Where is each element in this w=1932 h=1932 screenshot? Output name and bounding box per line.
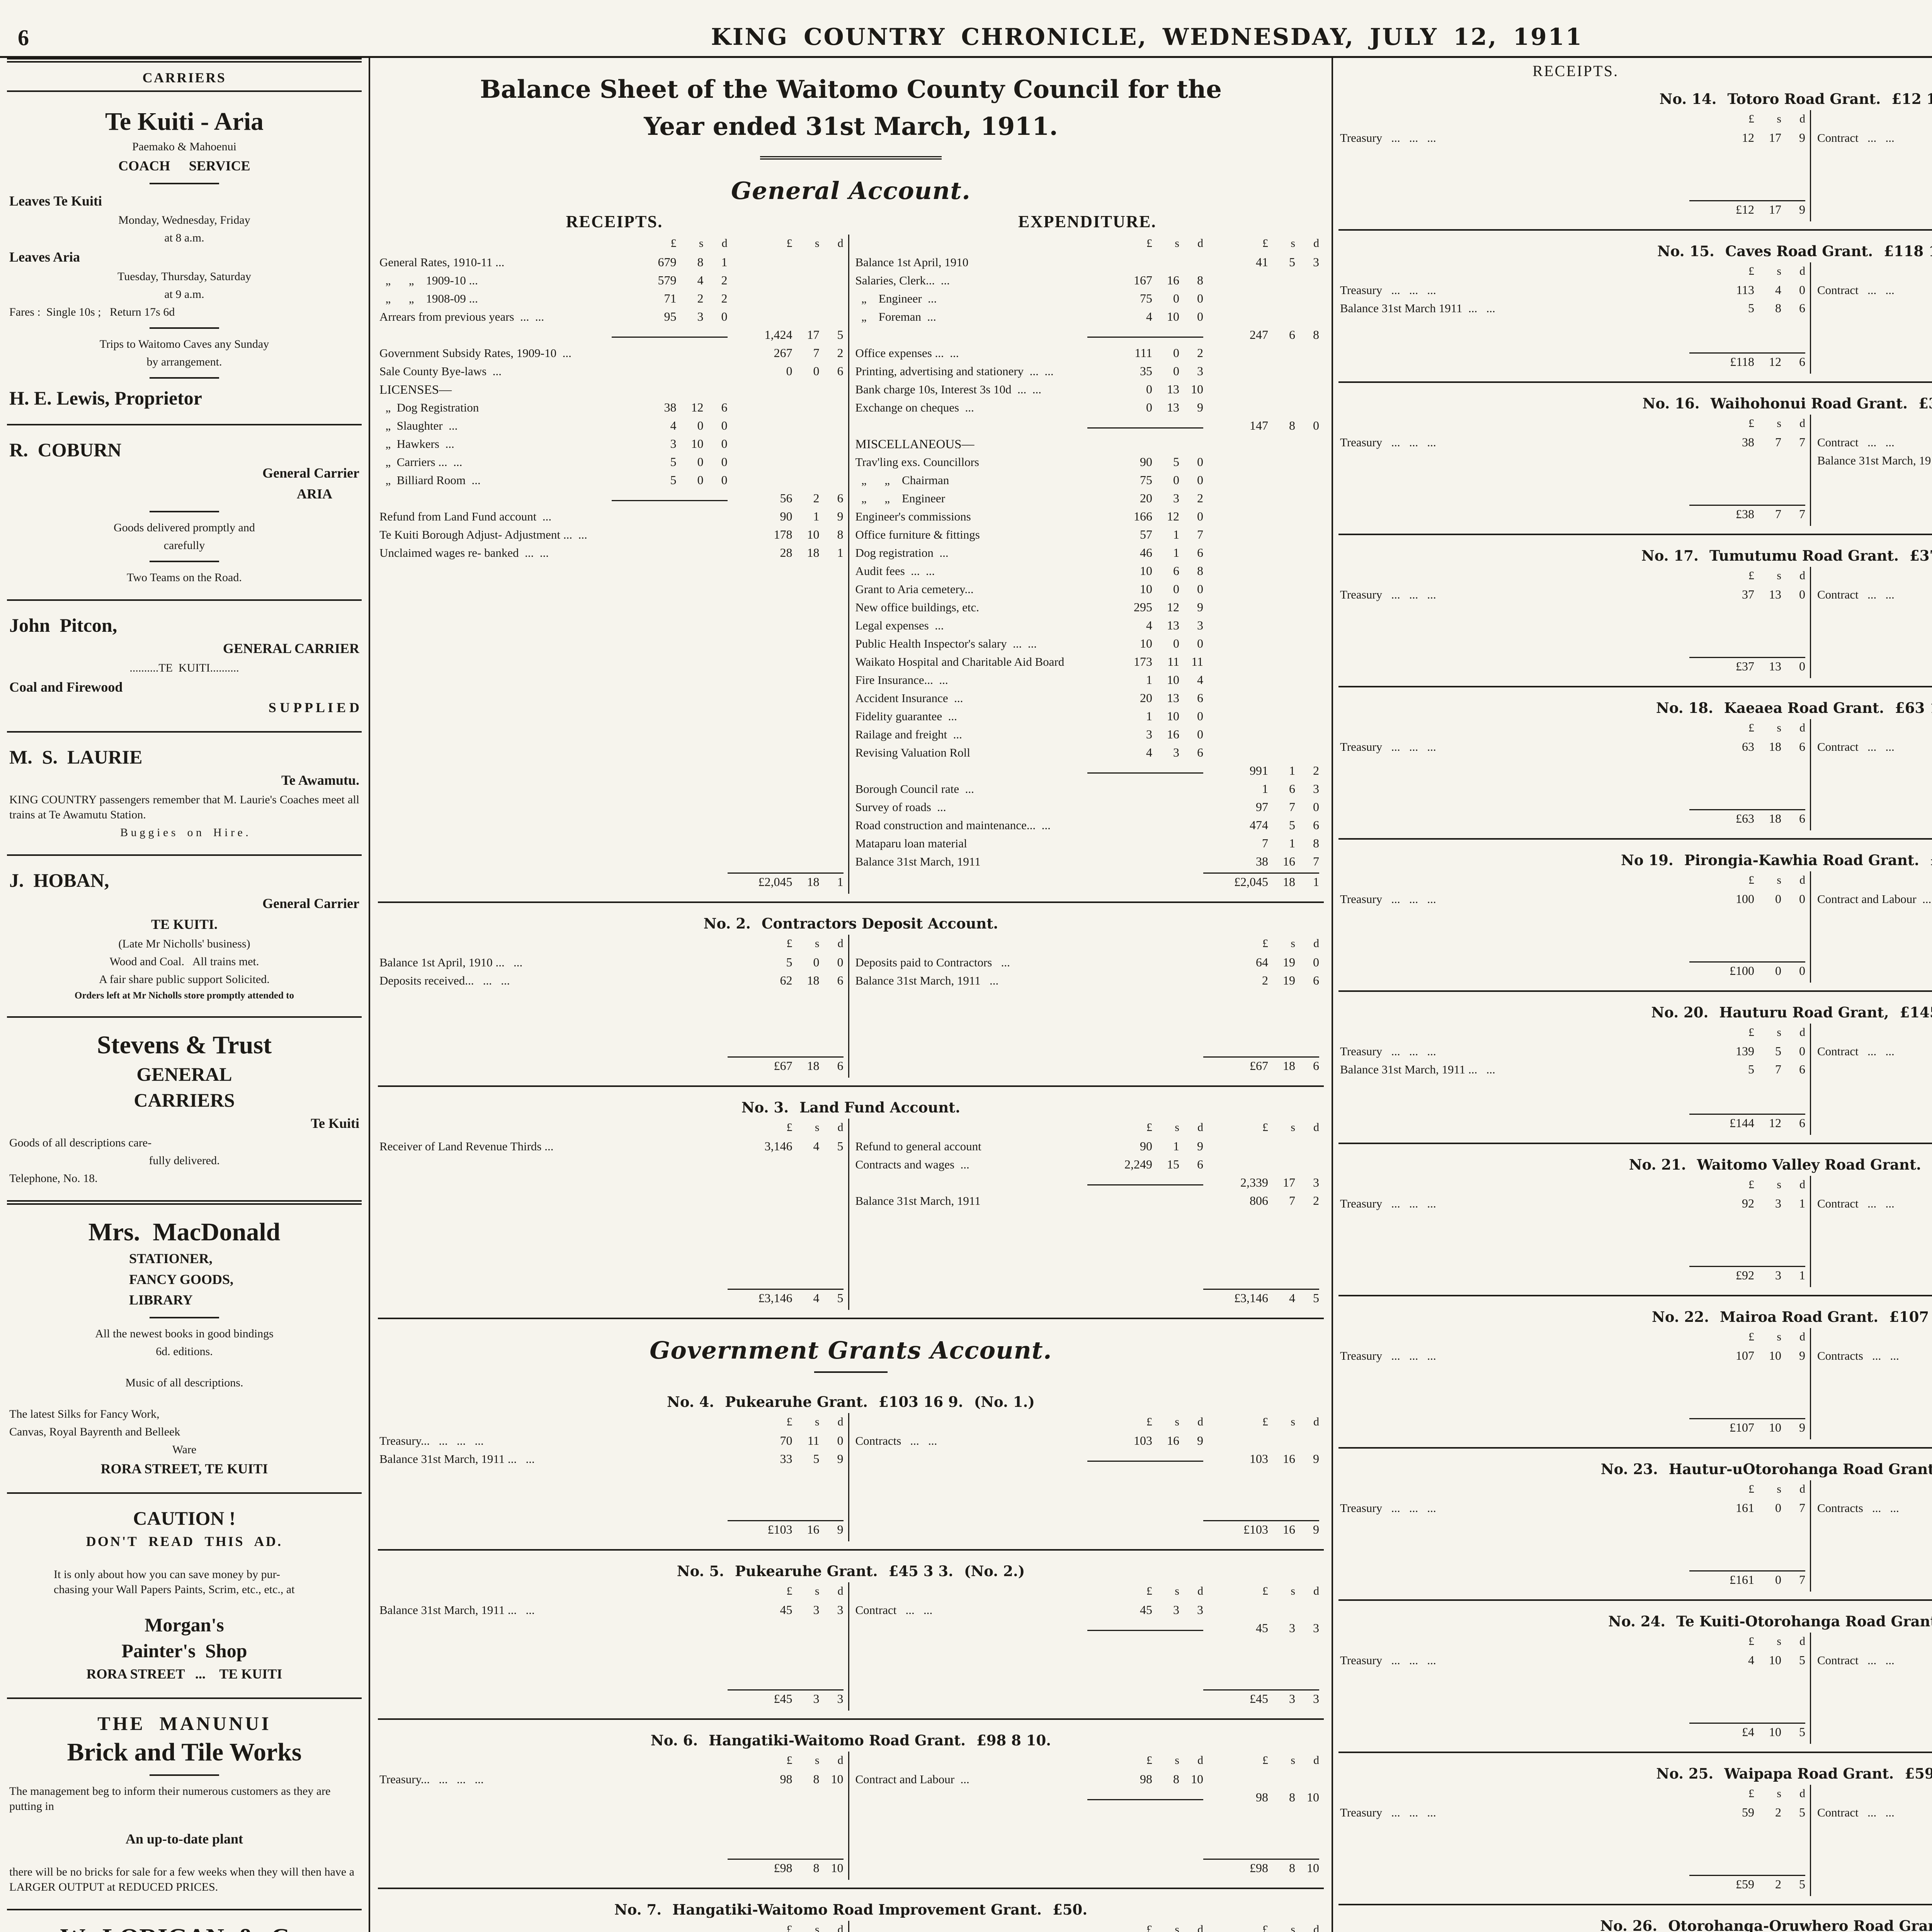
amount-part: s: [1754, 1026, 1781, 1039]
amount-part: 8: [1268, 1790, 1295, 1804]
row-label: Exchange on cheques ...: [855, 400, 1088, 415]
row-label: New office buildings, etc.: [855, 600, 1088, 615]
amount-part: 8: [1295, 836, 1319, 850]
ad-line: Canvas, Royal Bayrenth and Belleek: [9, 1424, 359, 1439]
amount-part: 10: [1754, 1349, 1781, 1363]
amount-part: 6: [820, 364, 844, 378]
ledger-row: Treasury ... ... ...3877: [1340, 435, 1805, 453]
ledger-row: £10000: [1817, 961, 1932, 980]
ad-stevens-trust: Stevens & TrustGENERALCARRIERSTe KuitiGo…: [7, 1018, 362, 1205]
account-title: No 19.Pirongia-Kawhia Road Grant.£100 0 …: [1338, 851, 1932, 869]
amount-part: 3: [793, 1692, 820, 1706]
amount-cell: 166120: [1087, 509, 1203, 524]
amount-part: 0: [1179, 582, 1203, 596]
ad-line: FANCY GOODS,: [9, 1270, 359, 1289]
row-label: Office expenses ... ...: [855, 346, 1088, 361]
amount-part: 90: [1088, 455, 1152, 469]
amount-part: 3: [1152, 1603, 1179, 1617]
account-amount: £50.: [1053, 1901, 1087, 1918]
ledger-half-expenditure: £sd£sdContract ... ...92319231£9231: [1810, 1176, 1932, 1287]
amount-part: 0: [1179, 709, 1203, 723]
amount-part: £: [1088, 237, 1152, 250]
account-title: No. 26.Otorohanga-Oruwhero Road Grant.£4…: [1338, 1917, 1932, 1932]
amount-cell: £sd: [1689, 1635, 1805, 1648]
amount-part: 4: [793, 1291, 820, 1305]
ledger-row: 16107: [1817, 1519, 1932, 1537]
ledger-row: £98810: [379, 1859, 844, 1877]
amount-cell: £sd: [728, 1585, 844, 1598]
amount-part: 4: [1690, 1653, 1754, 1667]
ad-line: CAUTION !: [9, 1507, 359, 1530]
ledger-half-receipts: £sdTreasury ... ... ...63186£63186: [1338, 719, 1810, 830]
ledger-row: £118126: [1340, 352, 1805, 371]
ledger-half-expenditure: £sd£sdContracts ... ...107109107109£1071…: [1810, 1328, 1932, 1439]
amount-part: 9: [1179, 600, 1203, 614]
ad-line: Orders left at Mr Nicholls store promptl…: [9, 990, 359, 1002]
account-block: No 19.Pirongia-Kawhia Road Grant.£100 0 …: [1338, 841, 1932, 989]
amount-cell: £118126: [1689, 352, 1805, 369]
amount-part: s: [1754, 1483, 1781, 1496]
account-block: No. 5.Pukearuhe Grant.£45 3 3.(No. 2.)£s…: [378, 1552, 1324, 1717]
amount-part: 8: [1152, 1772, 1179, 1786]
amount-part: 6: [1295, 1059, 1319, 1073]
ledger-half-expenditure: £sd£sdContract ... ...3713037130£37130: [1810, 567, 1932, 678]
amount-cell: £sd: [1689, 1026, 1805, 1039]
amount-cell: £63186: [1689, 809, 1805, 826]
amount-part: 0: [704, 310, 728, 324]
amount-part: 13: [1152, 400, 1179, 415]
row-label: Grant to Aria cemetery...: [855, 582, 1088, 597]
amount-part: 10: [1179, 1772, 1203, 1786]
amount-part: 0: [1754, 1501, 1781, 1515]
amount-part: 4: [613, 418, 677, 433]
amount-part: 6: [1268, 782, 1295, 796]
amount-part: 9: [1295, 1452, 1319, 1466]
amount-part: 6: [1781, 740, 1805, 754]
ledger-column-heading-row: £sd£sd: [1817, 1178, 1932, 1196]
account-divider: [1338, 1143, 1932, 1144]
amount-cell: 10000: [1689, 892, 1805, 906]
amount-part: s: [1754, 265, 1781, 278]
amount-part: £103: [1204, 1522, 1268, 1537]
amount-part: s: [793, 937, 820, 950]
account-name: Hautur-uOtorohanga Road Grant.: [1669, 1461, 1932, 1478]
account-block: No. 20.Hauturu Road Grant,£145 0 0.£sdTr…: [1338, 993, 1932, 1141]
amount-cell: 11102: [1087, 346, 1203, 360]
amount-cell: £2,045181: [1203, 872, 1319, 889]
amount-part: £59: [1690, 1877, 1754, 1891]
ledger-row: „ „ Chairman7500: [855, 473, 1320, 491]
ledger-row: Revising Valuation Roll436: [855, 745, 1320, 764]
row-label: „ „ 1909-10 ...: [379, 273, 612, 288]
amount-part: 0: [1781, 283, 1805, 297]
amount-part: s: [793, 1415, 820, 1429]
amount-cell: £sd: [1203, 937, 1319, 950]
amount-part: £: [729, 237, 793, 250]
ad-divider: [150, 561, 219, 562]
amount-part: s: [1268, 1121, 1295, 1134]
account-name: Land Fund Account.: [799, 1099, 960, 1116]
amount-cell: £sd: [1203, 1923, 1319, 1932]
ledger-column-heading-row: £sd: [1340, 1483, 1805, 1501]
ledger-row: £103169: [379, 1520, 844, 1538]
amount-part: 13: [1754, 659, 1781, 673]
row-label: Audit fees ... ...: [855, 564, 1088, 579]
amount-part: £2,045: [729, 875, 793, 889]
amount-part: £: [1204, 1415, 1268, 1429]
amount-cell: 9530: [612, 310, 728, 324]
account-number: No 19.: [1621, 852, 1673, 869]
amount-part: £: [1088, 1585, 1152, 1598]
amount-cell: 4133: [1087, 618, 1203, 633]
account-block: No. 16.Waihohonui Road Grant.£38 7 7.£sd…: [1338, 384, 1932, 532]
amount-part: d: [1295, 937, 1319, 950]
account-amount: £107 10 9.: [1889, 1308, 1932, 1325]
ledger-row: Office expenses ... ...11102: [855, 346, 1320, 364]
amount-part: 16: [1152, 727, 1179, 742]
amount-part: £: [729, 1415, 793, 1429]
row-label: Balance 31st March, 1911 ... ...: [1340, 1062, 1689, 1077]
account-block: No. 18.Kaeaea Road Grant.£63 18 6.£sdTre…: [1338, 689, 1932, 837]
amount-part: 8: [677, 255, 704, 269]
row-label: Deposits received... ... ...: [379, 973, 728, 988]
ledger-row: £63186: [1817, 809, 1932, 827]
ledger-row: Legal expenses ...4133: [855, 618, 1320, 636]
amount-cell: 1731111: [1087, 655, 1203, 669]
amount-part: 64: [1204, 955, 1268, 969]
amount-part: 3: [1295, 782, 1319, 796]
amount-part: 13: [1152, 691, 1179, 705]
amount-part: 0: [1781, 587, 1805, 602]
amount-cell: £4533: [1203, 1689, 1319, 1706]
amount-cell: 400: [612, 418, 728, 433]
amount-cell: [1087, 772, 1203, 775]
account-block: No. 25.Waipapa Road Grant.£59 2 5.£sdTre…: [1338, 1755, 1932, 1902]
ad-spacer: [9, 1600, 359, 1611]
ledger-column-heading-row: £sd£sd: [1817, 1330, 1932, 1349]
ledger-row: £9231: [1340, 1266, 1805, 1284]
ad-line: ARIA: [9, 485, 359, 503]
ledger-column-heading-row: £sd£sd: [1817, 874, 1932, 892]
account-divider: [1338, 686, 1932, 687]
ledger-row: MISCELLANEOUS—: [855, 437, 1320, 455]
ad-line: Painter's Shop: [9, 1639, 359, 1662]
ad-line: ..........TE KUITI..........: [9, 660, 359, 675]
row-label: Treasury... ... ... ...: [379, 1434, 728, 1449]
amount-cell: 64190: [1203, 955, 1319, 969]
ad-line: Te Kuiti: [9, 1114, 359, 1133]
ledger-half-receipts: £sdTreasury... ... ... ...70110Balance 3…: [378, 1413, 848, 1541]
account-title: No. 15.Caves Road Grant.£118 12 6.: [1338, 242, 1932, 260]
amount-cell: 5925: [1689, 1805, 1805, 1820]
amount-cell: 11340: [1689, 283, 1805, 297]
ledger-half-receipts: £sdTreasury ... ... ...12179£12179: [1338, 110, 1810, 221]
amount-part: 3: [1754, 1268, 1781, 1282]
amount-part: 0: [1781, 1044, 1805, 1058]
ledger-row: Contract ... ...4105: [1817, 1653, 1932, 1671]
ad-line: All the newest books in good bindings: [9, 1326, 359, 1341]
amount-cell: £sd: [1689, 112, 1805, 126]
amount-part: 6: [1295, 818, 1319, 832]
ad-line: M. S. LAURIE: [9, 745, 359, 769]
account-title: No. 24.Te Kuiti-Otorohanga Road Grant.£4…: [1338, 1612, 1932, 1630]
amount-part: 1: [1152, 546, 1179, 560]
amount-part: 8: [1295, 328, 1319, 342]
amount-part: 5: [1781, 1653, 1805, 1667]
row-label: Refund from Land Fund account ...: [379, 509, 612, 524]
amount-part: 6: [1781, 1062, 1805, 1077]
amount-part: 10: [820, 1772, 844, 1786]
account-name: Hangatiki-Waitomo Road Improvement Grant…: [672, 1901, 1042, 1918]
account-number: No. 17.: [1641, 547, 1699, 564]
row-label: Contract ... ...: [1817, 1653, 1932, 1668]
amount-part: 3: [1088, 727, 1152, 742]
title-line-2: Year ended 31st March, 1911.: [644, 112, 1058, 141]
account-block: No. 23.Hautur-uOtorohanga Road Grant.£16…: [1338, 1450, 1932, 1598]
amount-part: s: [1754, 112, 1781, 126]
amount-part: 2: [820, 346, 844, 360]
ledger-row: Contract ... ...118126: [1817, 283, 1932, 301]
amount-part: 5: [1690, 1062, 1754, 1077]
ledger-row: 5626: [379, 491, 844, 509]
amount-part: 1: [820, 875, 844, 889]
amount-cell: £sd: [1087, 1415, 1203, 1429]
ledger-body: £sd£sdGeneral Rates, 1910-11 ...67981 „ …: [378, 235, 1324, 894]
ledger-column-heading-row: £sd£sd: [855, 1923, 1320, 1932]
amount-cell: 26772: [728, 346, 844, 360]
amount-cell: £sd: [1087, 1754, 1203, 1767]
ledger-row: Balance 31st March 1911 ... ...586: [1340, 301, 1805, 319]
account-name: Te Kuiti-Otorohanga Road Grant.: [1676, 1613, 1932, 1630]
amount-part: 5: [613, 455, 677, 469]
account-title: No. 20.Hauturu Road Grant,£145 0 0.: [1338, 1003, 1932, 1021]
ledger-row: £4533: [855, 1689, 1320, 1708]
amount-part: 7: [1268, 1194, 1295, 1208]
amount-cell: 0139: [1087, 400, 1203, 415]
account-name: Tumutumu Road Grant.: [1709, 547, 1899, 564]
amount-part: 2: [1204, 973, 1268, 988]
amount-part: 0: [1152, 346, 1179, 360]
ad-line: STATIONER,: [9, 1250, 359, 1268]
ledger-column-heading-row: £sd: [1340, 1787, 1805, 1805]
amount-cell: 7500: [1087, 473, 1203, 487]
ledger-body: £sdTreasury ... ... ...16107£16107£sd£sd…: [1338, 1480, 1932, 1592]
ledger-half-receipts: £sdBalance 31st March, 1911 ... ...4533£…: [378, 1582, 848, 1711]
amount-cell: 4100: [1087, 310, 1203, 324]
amount-part: £3,146: [729, 1291, 793, 1305]
amount-part: 45: [1088, 1603, 1152, 1617]
account-divider: [378, 1718, 1324, 1720]
amount-cell: 103169: [1203, 1452, 1319, 1466]
page-header: 6 KING COUNTRY CHRONICLE, WEDNESDAY, JUL…: [0, 0, 1932, 58]
account-divider: [378, 1549, 1324, 1551]
amount-cell: 28181: [728, 546, 844, 560]
amount-part: 5: [820, 1291, 844, 1305]
amount-part: 1: [1781, 1196, 1805, 1211]
ledger-half-receipts: £sdTreasury ... ... ...4105£4105: [1338, 1633, 1810, 1744]
account-divider: [378, 1318, 1324, 1319]
amount-part: 111: [1088, 346, 1152, 360]
ad-line: H. E. Lewis, Proprietor: [9, 386, 359, 410]
amount-part: £: [1690, 874, 1754, 887]
account-title: No. 21.Waitomo Valley Road Grant.£92 3 1…: [1338, 1156, 1932, 1173]
ledger-row: £4105: [1340, 1723, 1805, 1741]
amount-part: £: [1204, 1923, 1268, 1932]
ledger-row: „ „ 1908-09 ...7122: [379, 291, 844, 310]
account-name: Kaeaea Road Grant.: [1724, 699, 1884, 716]
account-number: No. 5.: [677, 1563, 724, 1580]
account-title: No. 2.Contractors Deposit Account.: [378, 915, 1324, 932]
row-label: General Rates, 1910-11 ...: [379, 255, 612, 270]
amount-part: £: [1204, 237, 1268, 250]
row-label: Contract ... ...: [1817, 1044, 1932, 1059]
account-divider: [1338, 534, 1932, 535]
amount-part: £: [729, 937, 793, 950]
amount-part: s: [793, 1585, 820, 1598]
amount-cell: £sd: [1689, 1787, 1805, 1800]
amount-part: 0: [1152, 473, 1179, 487]
amount-part: 6: [704, 400, 728, 415]
account-title: No. 14.Totoro Road Grant.£12 17 9.: [1338, 90, 1932, 108]
ledger-half-expenditure: £sd£sdContract ... ...4910049100£49100: [848, 1921, 1324, 1932]
ledger-row: £67186: [855, 1056, 1320, 1075]
row-label: Treasury... ... ... ...: [379, 1772, 728, 1787]
amount-part: 0: [1179, 727, 1203, 742]
account-number: No. 24.: [1608, 1613, 1665, 1630]
amount-part: 6: [1179, 546, 1203, 560]
row-label: „ Dog Registration: [379, 400, 612, 415]
ad-spacer: [9, 1816, 359, 1827]
amount-part: 5: [729, 955, 793, 969]
amount-part: 10: [1152, 709, 1179, 723]
amount-part: d: [1781, 1483, 1805, 1496]
ledger-column-heading-row: £sd: [1340, 569, 1805, 587]
amount-part: 0: [1152, 364, 1179, 378]
amount-cell: £sd: [728, 1415, 844, 1429]
ad-line: Monday, Wednesday, Friday: [9, 213, 359, 228]
amount-part: 107: [1690, 1349, 1754, 1363]
amount-part: 10: [1754, 1420, 1781, 1435]
balance-sheet-column: Balance Sheet of the Waitomo County Coun…: [370, 58, 1333, 1932]
row-label: Public Health Inspector's salary ... ...: [855, 636, 1088, 651]
amount-part: 2: [1295, 764, 1319, 778]
ledger-row: £16107: [1340, 1570, 1805, 1588]
amount-part: £118: [1690, 355, 1754, 369]
amount-cell: £3,14645: [1203, 1289, 1319, 1305]
row-label: Treasury ... ... ...: [1340, 892, 1689, 907]
ledger-row: „ Dog Registration38126: [379, 400, 844, 418]
amount-part: 2: [677, 291, 704, 306]
amount-part: 10: [1088, 636, 1152, 651]
ledger-column-heading-row: £sd: [855, 937, 1320, 955]
amount-cell: 16107: [1689, 1501, 1805, 1515]
ad-line: THE MANUNUI: [9, 1712, 359, 1735]
amount-part: 0: [704, 418, 728, 433]
amount-cell: 2032: [1087, 491, 1203, 505]
amount-part: 90: [1088, 1139, 1152, 1153]
ledger-row: 4105: [1817, 1671, 1932, 1689]
ad-spacer: [9, 1393, 359, 1404]
ledger-row: Balance 31st March, 1911001: [1817, 453, 1932, 471]
amount-part: 1,424: [729, 328, 793, 342]
amount-part: d: [1781, 721, 1805, 735]
ledger-row: Office furniture & fittings5717: [855, 527, 1320, 546]
amount-part: d: [820, 237, 844, 250]
amount-part: s: [677, 237, 704, 250]
amount-part: 8: [1268, 418, 1295, 433]
amount-part: 4: [1088, 745, 1152, 760]
ledger-body: £sdReceiver of Land Revenue Thirds ...3,…: [378, 1119, 1324, 1310]
ledger-row: Borough Council rate ...163: [855, 782, 1320, 800]
amount-part: s: [1268, 1585, 1295, 1598]
amount-part: 2: [1295, 1194, 1319, 1208]
account-name: Pirongia-Kawhia Road Grant.: [1684, 852, 1919, 869]
amount-cell: [1087, 1799, 1203, 1801]
amount-cell: £sd: [1203, 237, 1319, 250]
amount-cell: 2,249156: [1087, 1157, 1203, 1172]
amount-part: s: [1754, 721, 1781, 735]
amount-part: £: [1690, 417, 1754, 430]
ledger-row: Refund to general account9019: [855, 1139, 1320, 1157]
amount-part: 12: [677, 400, 704, 415]
row-label: Unclaimed wages re- banked ... ...: [379, 546, 612, 561]
ledger-half-receipts: £sdTreasury ... ... ...16107£16107: [1338, 1480, 1810, 1592]
ad-line: J. HOBAN,: [9, 869, 359, 892]
amount-part: 1: [704, 255, 728, 269]
amount-part: 0: [677, 473, 704, 487]
amount-cell: 4105: [1689, 1653, 1805, 1667]
row-label: Dog registration ...: [855, 546, 1088, 561]
row-label: Borough Council rate ...: [855, 782, 1088, 797]
amount-part: £63: [1690, 811, 1754, 826]
ad-line: Ware: [9, 1442, 359, 1457]
newspaper-page: 6 KING COUNTRY CHRONICLE, WEDNESDAY, JUL…: [0, 0, 1932, 1932]
amount-part: 38: [1204, 854, 1268, 869]
grants-accounts-4-13: No. 4.Pukearuhe Grant.£103 16 9.(No. 1.)…: [378, 1383, 1324, 1932]
amount-part: £: [1690, 265, 1754, 278]
row-label: Road construction and maintenance... ...: [855, 818, 1088, 833]
amount-part: 6: [1179, 691, 1203, 705]
amount-part: 10: [1088, 582, 1152, 596]
ledger-row: Railage and freight ...3160: [855, 727, 1320, 745]
ad-hoban: J. HOBAN,General CarrierTE KUITI.(Late M…: [7, 856, 362, 1018]
ad-line: Telephone, No. 18.: [9, 1171, 359, 1186]
amount-part: 2,249: [1088, 1157, 1152, 1172]
amount-part: 18: [793, 875, 820, 889]
ledger-row: £4533: [379, 1689, 844, 1708]
ledger-row: £12179: [1340, 200, 1805, 218]
ledger-row: £3,14645: [855, 1289, 1320, 1307]
masthead: KING COUNTRY CHRONICLE, WEDNESDAY, JULY …: [80, 24, 1932, 51]
amount-cell: 3,14645: [728, 1139, 844, 1153]
ledger-row: Balance 31st March, 1911 ... ...4533: [379, 1603, 844, 1621]
amount-part: 1: [1152, 527, 1179, 542]
amount-part: 6: [1781, 1116, 1805, 1130]
ledger-column-heading-row: £sd: [1340, 1330, 1805, 1349]
amount-cell: 98810: [1203, 1790, 1319, 1804]
ledger-row: £12179: [1817, 200, 1932, 218]
ledger-row: Treasury ... ... ...10000: [1340, 892, 1805, 910]
amount-part: 0: [1754, 1573, 1781, 1587]
grants-accounts-14-33: No. 14.Totoro Road Grant.£12 17 9.£sdTre…: [1338, 80, 1932, 1932]
amount-cell: 4616: [1087, 546, 1203, 560]
account-name: Totoro Road Grant.: [1727, 90, 1881, 107]
account-name: Hauturu Road Grant,: [1719, 1004, 1889, 1021]
amount-part: £: [613, 237, 677, 250]
ledger-column-heading-row: £sd: [379, 1121, 844, 1139]
row-label: Treasury ... ... ...: [1340, 435, 1689, 450]
account-title: No. 17.Tumutumu Road Grant.£37 13 0.: [1338, 547, 1932, 565]
